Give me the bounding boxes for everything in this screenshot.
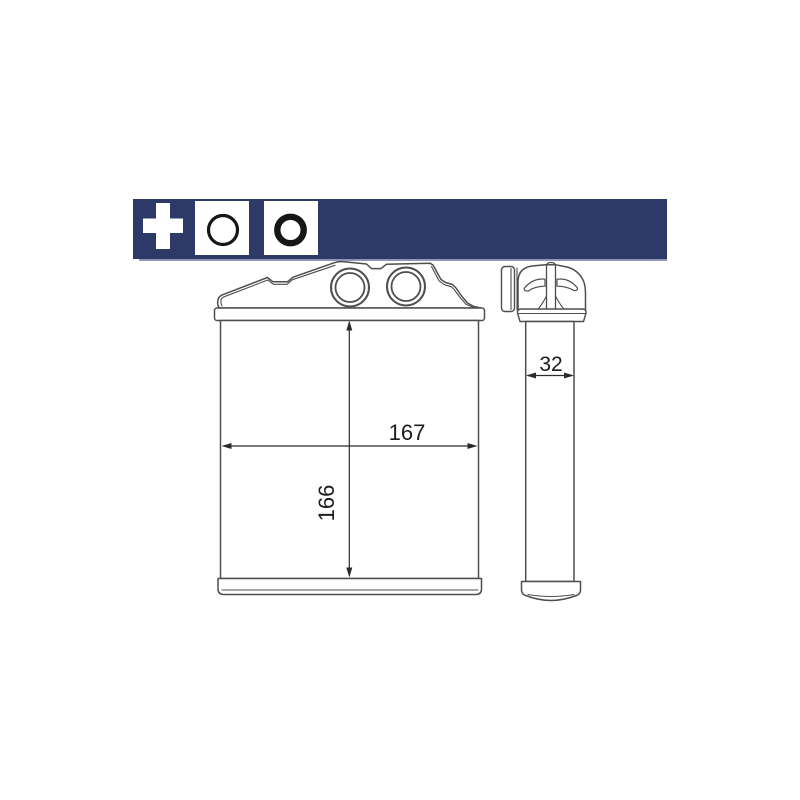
technical-drawing: 167 166 32	[0, 0, 800, 800]
side-flange	[502, 267, 518, 312]
dim-depth-label: 32	[539, 353, 562, 376]
side-collar	[517, 309, 586, 322]
port-circle-right	[387, 268, 425, 306]
dim-width-label: 167	[389, 420, 426, 445]
side-bottom-cap	[522, 582, 581, 601]
bottom-tank	[218, 579, 482, 595]
header-plate	[215, 308, 485, 321]
product-image: 167 166 32	[0, 0, 800, 800]
port-circle-left	[331, 269, 369, 307]
side-view	[502, 263, 587, 601]
dim-height-label: 166	[314, 485, 339, 522]
